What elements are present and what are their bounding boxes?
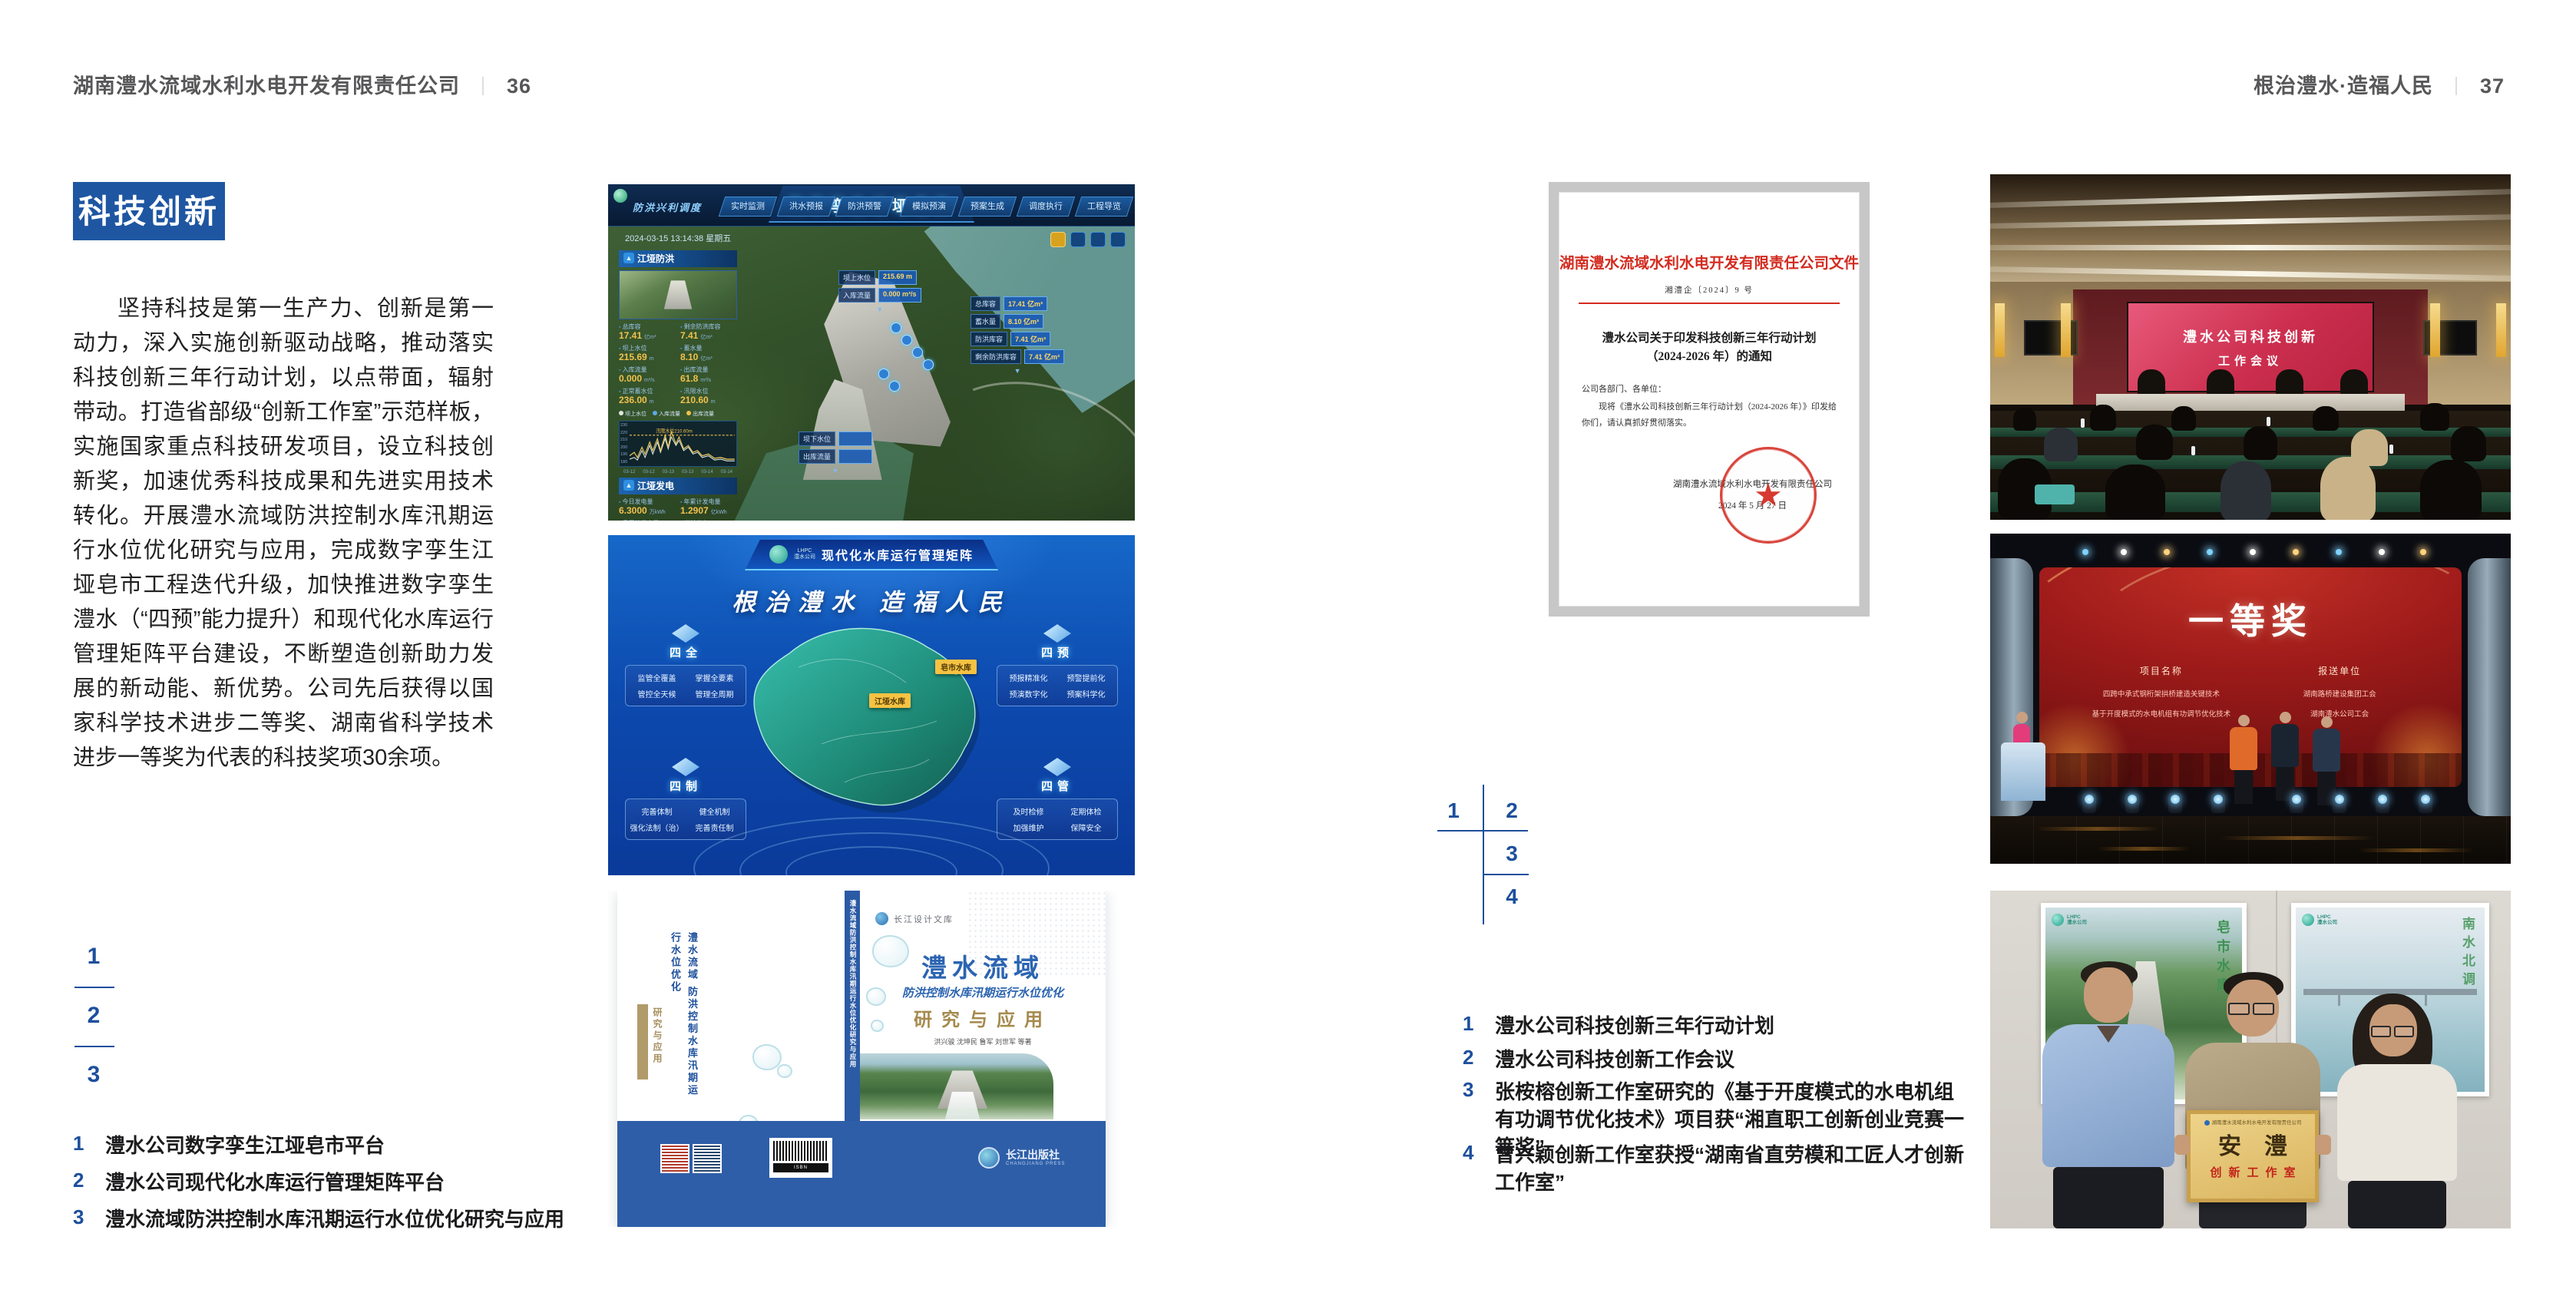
map-tag-jiangya: 江垭水库 (869, 693, 911, 708)
tag-value (838, 449, 872, 464)
block-siguan: 四管 及时检修定期体检 加强维护保障安全 (997, 758, 1118, 840)
caption-row: 1 澧水公司科技创新三年行动计划 (1463, 1012, 1969, 1040)
stat-value: 1.2907 (680, 505, 709, 516)
stat-unit: 亿kWh (711, 510, 727, 515)
tab-label: 洪水预报 (789, 197, 823, 216)
chart-x-axis: 03-1203-1203-1303-1303-1403-14 (619, 470, 737, 474)
back-title-region: 澧水流域 (686, 932, 698, 981)
layers-icon (1070, 232, 1086, 247)
screen-title-line1: 澧水公司科技创新 (2183, 326, 2318, 346)
attendee-silhouette (2221, 461, 2271, 520)
gate-marker (912, 347, 923, 358)
moving-head-light (2419, 793, 2432, 813)
stat-cell: 当前出力0.00MW (680, 519, 737, 521)
speaker-silhouette (2207, 369, 2234, 395)
stat-value: 0.000 (619, 373, 642, 384)
brand-slogan: 根治澧水·造福人民 (2254, 74, 2433, 98)
speaker-silhouette (2340, 369, 2368, 395)
tab-simulation: 模拟预演 (900, 197, 958, 217)
figure-meeting-photo: 澧水公司科技创新 工作会议 (1990, 174, 2511, 520)
module-label: 防洪兴利调度 (633, 200, 702, 214)
water-droplet (752, 1044, 782, 1070)
block-items: 监管全覆盖掌握全要素 管控全天候管理全周期 (625, 665, 746, 706)
stat-unit: m (650, 356, 654, 362)
reservoir-tag: 总库容17.41 亿m³ 蓄水量8.10 亿m³ 防洪库容7.41 亿m³ 剩余… (971, 296, 1064, 375)
official-seal: ★ (1720, 447, 1817, 544)
publisher-logo: 长江出版社 CHANGJIANG PRESS (978, 1147, 1065, 1169)
caption-number: 4 (1463, 1141, 1483, 1165)
figure-index-1: 1 (71, 944, 117, 970)
attendee-silhouette (2420, 403, 2449, 431)
header-divider: ｜ (2433, 77, 2480, 98)
authors-line: 洪兴骏 沈坤民 鲁军 刘世军 等著 (860, 1037, 1106, 1046)
chart-y-axis: 230220210200190180 (620, 422, 628, 466)
stat-value: 6.3000 (619, 505, 647, 516)
tag-value: 7.41 亿m³ (1024, 349, 1064, 364)
tissue-box (2035, 484, 2075, 504)
stage-light-dot (2164, 549, 2170, 555)
ceiling-light (1990, 245, 2511, 250)
block-items: 完善体制健全机制 强化法制（治）完善责任制 (625, 798, 746, 840)
body (2313, 729, 2340, 772)
lhpc-logo-icon (769, 545, 788, 564)
attendee-silhouette (2105, 465, 2165, 520)
toolbar-icons (1050, 232, 1126, 247)
plaque-logo-icon (2204, 1120, 2210, 1126)
lhpc-logo-text: LHPC澧水公司 (2067, 914, 2087, 925)
stat-unit: 亿m³ (644, 335, 656, 340)
caption-number: 1 (1463, 1012, 1483, 1036)
block-name: 四制 (625, 778, 746, 794)
glasses-icon (2371, 1026, 2414, 1037)
legs (2234, 770, 2253, 804)
plaque-subtitle: 创新工作室 (2191, 1164, 2315, 1180)
stage-light-dot (2420, 549, 2426, 555)
flood-stats-grid: 总库容17.41亿m³ 剩余防洪库容7.41亿m³ 坝上水位215.69m 蓄水… (619, 322, 737, 407)
seal-star: ★ (1754, 476, 1783, 514)
panel-icon: ▲ (623, 480, 634, 491)
innovation-studio-plaque: 湖南澧水流域水利水电开发有限责任公司 安澧 创新工作室 (2187, 1110, 2319, 1202)
stage-light-dot (2250, 549, 2256, 555)
caption-text: 曾兴颖创新工作室获授“湖南省直劳模和工匠人才创新工作室” (1495, 1141, 1969, 1196)
block-name: 四全 (625, 644, 746, 660)
section-title: 科技创新 (73, 182, 225, 240)
tag-label: 总库容 (971, 296, 1000, 311)
locate-icon (1090, 232, 1106, 247)
head (2238, 715, 2250, 726)
hand (2174, 1135, 2190, 1155)
stage-light-dot (2207, 549, 2213, 555)
building-icon (672, 758, 699, 776)
user-icon (1050, 232, 1066, 247)
plaque-name: 安澧 (2191, 1127, 2315, 1161)
stat-value: 210.60 (680, 395, 709, 405)
trousers (2053, 1167, 2164, 1228)
moving-head-light (2125, 793, 2139, 813)
thumb-dam-shape (664, 280, 692, 309)
figure-matrix-platform: LHPC澧水公司 现代化水库运行管理矩阵 根治澧水 造福人民 江垭水库 皂市水库… (608, 535, 1135, 875)
wall-lamp (2496, 303, 2506, 357)
figure-index-rule (74, 987, 114, 988)
figure-official-document: 湖南澧水流域水利水电开发有限责任公司文件 湘澧企〔2024〕9 号 澧水公司关于… (1549, 182, 1870, 617)
stat-value: 8.10 (680, 352, 698, 362)
flood-panel-header: ▲江垭防洪 (619, 250, 737, 267)
front-title-region: 澧水流域 (860, 947, 1106, 984)
document-page: 湖南澧水流域水利水电开发有限责任公司文件 湘澧企〔2024〕9 号 澧水公司关于… (1559, 192, 1860, 607)
caption-number: 1 (73, 1132, 93, 1156)
tag-value: 8.10 亿m³ (1004, 314, 1043, 329)
stat-cell: 坝上水位215.69m (619, 344, 676, 364)
block-name: 四预 (997, 644, 1118, 660)
caption-text: 澧水公司数字孪生江垭皂市平台 (105, 1132, 385, 1159)
attendee-silhouette (2451, 426, 2486, 461)
stage-light-dot (2379, 549, 2385, 555)
back-cover-title: 澧水流域 防洪控制水库汛期运行水位优化 (666, 932, 700, 1109)
stat-unit: 亿m³ (700, 335, 712, 340)
tag-label: 剩余防洪库容 (971, 349, 1021, 364)
stat-cell: 年累计发电量1.2907亿kWh (680, 498, 737, 517)
head (2321, 716, 2333, 728)
legend-item: 入库流量 (653, 410, 680, 418)
floor-reflection (2036, 827, 2159, 831)
dashboard-header-bar: 数字孪生江垭皂市 防洪兴利调度 实时监测 洪水预报 防洪预警 模拟预演 预案生成… (608, 184, 1135, 226)
isbn-barcode: ISBN (769, 1138, 832, 1178)
wall-lamp (2061, 303, 2071, 357)
stat-cell: 入库流量0.000m³/s (619, 365, 676, 385)
tag-pointer: ▼ (838, 306, 921, 313)
monitor-icon (1043, 624, 1071, 643)
company-name: 湖南澧水流域水利水电开发有限责任公司 (73, 74, 460, 98)
tab-flood-forecast: 洪水预报 (777, 197, 835, 217)
stat-unit: m³/s (644, 378, 655, 383)
brochure-spread: 湖南澧水流域水利水电开发有限责任公司｜36 根治澧水·造福人民｜37 科技创新 … (0, 0, 2576, 1306)
attendee-silhouette (2090, 405, 2116, 431)
stat-cell: 正常蓄水位236.00m (619, 387, 676, 407)
figure-award-ceremony: 一等奖 项目名称 四跨中承式钢桁架拱桥建造关键技术 基于开度模式的水电机组有功调… (1990, 534, 2511, 864)
tag-label: 坝下水位 (799, 431, 835, 446)
page-number-left: 36 (507, 74, 531, 98)
caption-row: 2 澧水公司现代化水库运行管理矩阵平台 (73, 1169, 610, 1196)
figure-index-rule (74, 1046, 114, 1047)
figure-index-3: 3 (71, 1062, 117, 1088)
series-name: 长江设计文库 (894, 913, 954, 925)
downstream-tag: 坝下水位 出库流量 ▼ (799, 431, 872, 474)
stat-unit: 亿m³ (700, 356, 712, 362)
figure-index-rule (1484, 874, 1529, 875)
document-salutation: 公司各部门、各单位： (1582, 382, 1666, 395)
publisher-name: 长江出版社 (1006, 1150, 1065, 1162)
tab-project-tour: 工程导览 (1075, 197, 1133, 217)
body (2271, 724, 2299, 767)
caption-text: 澧水公司科技创新三年行动计划 (1495, 1012, 1774, 1040)
document-red-header: 湖南澧水流域水利水电开发有限责任公司文件 (1559, 250, 1860, 273)
tab-label: 预案生成 (971, 197, 1004, 216)
column-header: 项目名称 (2085, 664, 2237, 677)
qr-code (660, 1144, 689, 1173)
tab-flood-warning: 防洪预警 (835, 197, 894, 217)
publisher-name-en: CHANGJIANG PRESS (1006, 1162, 1065, 1166)
floor-reflection (2221, 836, 2374, 840)
tag-pointer: ▼ (971, 367, 1064, 375)
water-bottle (2081, 418, 2085, 428)
caption-row: 1 澧水公司数字孪生江垭皂市平台 (73, 1132, 610, 1159)
left-page-header: 湖南澧水流域水利水电开发有限责任公司｜36 (73, 69, 531, 99)
document-title-line1: 澧水公司关于印发科技创新三年行动计划 (1559, 329, 1860, 346)
front-title-main: 防洪控制水库汛期运行水位优化 (860, 984, 1106, 1000)
chart-annotation: 汛限水位210.60m (656, 427, 693, 434)
front-title-sub: 研究与应用 (860, 1004, 1106, 1031)
matrix-header: LHPC澧水公司 现代化水库运行管理矩阵 (745, 540, 998, 570)
matrix-title: 现代化水库运行管理矩阵 (822, 545, 974, 564)
caption-row: 2 澧水公司科技创新工作会议 (1463, 1046, 1969, 1073)
audience-area (1990, 411, 2511, 520)
attendee-silhouette (2136, 425, 2173, 460)
head (2280, 712, 2291, 723)
panel-title: 江垭发电 (637, 481, 674, 491)
tag-value: 7.41 亿m³ (1010, 332, 1050, 346)
stage-side-panel (2468, 558, 2511, 816)
spine-title: 澧水流域防洪控制水库汛期运行水位优化研究与应用 (847, 900, 858, 1130)
tag-label: 蓄水量 (971, 314, 1000, 329)
speaker-silhouette (2276, 369, 2303, 395)
caption-text: 澧水公司现代化水库运行管理矩阵平台 (105, 1169, 445, 1196)
stat-cell: 出库流量61.8m³/s (680, 365, 737, 385)
caption-text: 澧水流域防洪控制水库汛期运行水位优化研究与应用 (105, 1205, 564, 1233)
tab-dispatch-execute: 调度执行 (1017, 197, 1075, 217)
legend-item: 坝上水位 (619, 410, 646, 418)
stat-value: 215.69 (619, 352, 647, 362)
stage-light-dot (2121, 549, 2127, 555)
figure-index-vline (1483, 785, 1484, 924)
caption-number: 2 (1463, 1046, 1483, 1070)
poster-logo: LHPC澧水公司 (2302, 914, 2337, 926)
map-tag-zaoshi: 皂市水库 (935, 660, 977, 674)
moving-head-light (2376, 793, 2389, 813)
stat-cell: 今日发电量6.3000万kWh (619, 498, 676, 517)
document-title-line2: （2024-2026 年）的通知 (1559, 347, 1860, 364)
figure-plaque-photo: LHPC澧水公司 皂市水库 LHPC澧水公司 南水北调 (1990, 891, 2511, 1228)
book-spread: 澧水流域 防洪控制水库汛期运行水位优化 研究与应用 澧水流域防洪控制水库汛期运行… (617, 891, 1106, 1227)
stat-label: 月累计发电量 (619, 519, 676, 521)
stat-unit: m (650, 399, 654, 405)
attendee-silhouette (2013, 408, 2036, 431)
lhpc-logo-text: LHPC澧水公司 (2317, 914, 2337, 925)
stage-light-dot (2082, 549, 2088, 555)
water-bottle (2389, 445, 2393, 454)
stat-label: 当前出力 (680, 519, 737, 521)
column-item: 基于开度模式的水电机组有功调节优化技术 (2085, 705, 2237, 725)
stat-cell: 月累计发电量3359.21万kWh (619, 519, 676, 521)
column-header: 报送单位 (2264, 664, 2416, 677)
stat-unit: m (711, 399, 716, 405)
shirt (2337, 1064, 2457, 1181)
moving-head-light (2290, 793, 2303, 813)
barcode-label: ISBN (773, 1163, 828, 1172)
app-logo-icon (613, 189, 627, 203)
winner-silhouette (2230, 715, 2257, 804)
power-panel-header: ▲江垭发电 (619, 478, 737, 494)
moving-head-light (2211, 793, 2225, 813)
lhpc-logo-text: LHPC澧水公司 (794, 548, 815, 560)
column-item: 四跨中承式钢桁架拱桥建造关键技术 (2085, 685, 2237, 705)
gate-marker (901, 335, 912, 346)
stat-value: 7.41 (680, 330, 698, 341)
glasses-icon (2228, 1003, 2274, 1015)
block-sizhi: 四制 完善体制健全机制 强化法制（治）完善责任制 (625, 758, 746, 840)
moving-head-light (2168, 793, 2182, 813)
attendee-silhouette (2244, 426, 2277, 460)
body (2230, 727, 2257, 770)
lhpc-logo-icon (2052, 914, 2064, 926)
tab-label: 模拟预演 (912, 197, 946, 216)
attendee-silhouette (2320, 457, 2376, 520)
gate-marker (923, 359, 934, 370)
gate-marker (878, 369, 889, 379)
right-tab-group: 模拟预演 预案生成 调度执行 工程导览 (903, 197, 1130, 217)
water-droplet (777, 1064, 792, 1078)
person-left (2033, 961, 2184, 1228)
wall-lamp (2430, 303, 2440, 357)
gold-block (637, 1004, 648, 1080)
podium (2001, 742, 2045, 801)
poster-logo: LHPC澧水公司 (2052, 914, 2087, 926)
speaker-silhouette (2138, 369, 2165, 395)
figure-index-rule (1437, 830, 1528, 832)
panel-title: 江垭防洪 (637, 253, 674, 264)
tab-realtime-monitor: 实时监测 (719, 197, 777, 217)
header-divider: ｜ (460, 77, 507, 98)
power-stats-grid: 今日发电量6.3000万kWh 年累计发电量1.2907亿kWh 月累计发电量3… (619, 498, 737, 521)
figure-index-3: 3 (1493, 841, 1531, 866)
legend-item: 出库流量 (686, 410, 714, 418)
stat-unit: 万kWh (650, 510, 666, 515)
stat-value: 236.00 (619, 395, 647, 405)
series-logo-row: 长江设计文库 (875, 912, 954, 925)
tab-label: 防洪预警 (848, 197, 881, 216)
head-table (2096, 394, 2405, 411)
block-name: 四管 (997, 778, 1118, 794)
figure-digital-twin-dashboard: 数字孪生江垭皂市 防洪兴利调度 实时监测 洪水预报 防洪预警 模拟预演 预案生成… (608, 184, 1135, 521)
panel-icon: ▲ (623, 253, 634, 263)
page-number-right: 37 (2480, 74, 2505, 98)
moving-head-light (2333, 793, 2346, 813)
stat-unit: m³/s (700, 378, 711, 383)
gear-icon (1043, 758, 1071, 776)
block-siyu: 四预 预报精准化预警提前化 预演数字化预案科学化 (997, 624, 1118, 706)
watershed-map (729, 613, 1024, 851)
chart-legend: 坝上水位 入库流量 出库流量 (619, 410, 737, 418)
timestamp: 2024-03-15 13:14:38 星期五 (625, 232, 731, 244)
dam-thumbnail (619, 270, 737, 319)
section-body-text: 坚持科技是第一生产力、创新是第一动力，深入实施创新驱动战略，推动落实科技创新三年… (73, 292, 494, 775)
stat-cell: 蓄水量8.10亿m³ (680, 344, 737, 364)
screen-title-line2: 工作会议 (2218, 352, 2283, 369)
stat-cell: 总库容17.41亿m³ (619, 322, 676, 342)
tag-label: 防洪库容 (971, 332, 1007, 346)
qr-code (693, 1144, 722, 1173)
gate-marker (891, 322, 901, 333)
cube-icon (672, 624, 699, 643)
tag-label: 出库流量 (799, 449, 835, 464)
cover-bottom-band (617, 1121, 1106, 1227)
water-bottle (2267, 417, 2270, 426)
back-cover-subtitle: 研究与应用 (651, 1007, 664, 1065)
figure-index-1: 1 (1434, 798, 1473, 823)
left-data-panel: ▲江垭防洪 总库容17.41亿m³ 剩余防洪库容7.41亿m³ 坝上水位215.… (619, 250, 737, 517)
plaque-org-line: 湖南澧水流域水利水电开发有限责任公司 (2191, 1118, 2315, 1126)
head (2084, 967, 2133, 1023)
stage-light-dot (2293, 549, 2299, 555)
water-bottle (2191, 446, 2195, 455)
tag-pointer: ▼ (799, 467, 872, 474)
upstream-tag: 坝上水位215.69 m 入库流量0.000 m³/s ▼ (838, 270, 921, 313)
tag-value: 215.69 m (878, 270, 917, 285)
moving-head-light (2082, 793, 2096, 813)
trousers (2348, 1181, 2446, 1228)
tag-value (838, 431, 872, 446)
caption-text: 澧水公司科技创新工作会议 (1495, 1046, 1734, 1073)
settings-icon (1110, 232, 1126, 247)
stat-value: 17.41 (619, 330, 642, 341)
tag-value: 17.41 亿m³ (1004, 296, 1047, 311)
figure-index-4: 4 (1493, 884, 1531, 909)
stage-light-dot (2336, 549, 2342, 555)
caption-row: 4 曾兴颖创新工作室获授“湖南省直劳模和工匠人才创新工作室” (1463, 1141, 1969, 1196)
right-page-header: 根治澧水·造福人民｜37 (2254, 69, 2505, 99)
stat-cell: 剩余防洪库容7.41亿m³ (680, 322, 737, 342)
document-number: 湘澧企〔2024〕9 号 (1559, 284, 1860, 296)
attendee-silhouette (2313, 406, 2339, 431)
dam-photo (860, 1053, 1053, 1119)
globe-icon (875, 912, 888, 925)
water-level-chart: 230220210200190180 汛限水位210.60m (619, 421, 737, 467)
tag-label: 坝上水位 (838, 270, 875, 285)
tab-label: 实时监测 (731, 197, 765, 216)
tab-label: 调度执行 (1029, 197, 1063, 216)
project-column: 项目名称 四跨中承式钢桁架拱桥建造关键技术 基于开度模式的水电机组有功调节优化技… (2085, 664, 2237, 725)
stat-value: 61.8 (680, 373, 698, 384)
tab-label: 工程导览 (1087, 197, 1121, 216)
floor-reflection (2359, 848, 2474, 852)
lhpc-logo-icon (2302, 914, 2314, 926)
tag-label: 入库流量 (838, 288, 875, 303)
attendee-silhouette (2420, 460, 2482, 520)
hand (2316, 1135, 2331, 1155)
attendee-silhouette (2171, 406, 2196, 431)
figure-book-cover: 澧水流域 防洪控制水库汛期运行水位优化 研究与应用 澧水流域防洪控制水库汛期运行… (608, 891, 1135, 1227)
caption-number: 3 (73, 1205, 93, 1229)
floor-reflection (2098, 847, 2190, 851)
red-rule (1579, 303, 1840, 304)
block-items: 及时检修定期体检 加强维护保障安全 (997, 798, 1118, 840)
wall-lamp (1995, 303, 2005, 357)
column-item: 湖南路桥建设集团工会 (2264, 685, 2416, 705)
gate-marker (889, 381, 900, 392)
figure-index-2: 2 (71, 1003, 117, 1029)
matrix-slogan: 根治澧水 造福人民 (608, 583, 1135, 617)
tab-plan-generate: 预案生成 (958, 197, 1017, 217)
caption-row: 3 澧水流域防洪控制水库汛期运行水位优化研究与应用 (73, 1205, 610, 1233)
left-tab-group: 实时监测 洪水预报 防洪预警 (722, 197, 891, 217)
poster-right-caption: 南水北调 (2458, 917, 2477, 990)
publisher-icon (978, 1147, 1000, 1169)
tag-value: 0.000 m³/s (878, 288, 921, 303)
stat-cell: 汛限水位210.60m (680, 387, 737, 407)
person-right (2330, 994, 2465, 1228)
figure-index-2: 2 (1493, 798, 1531, 823)
winner-silhouette (2313, 716, 2340, 805)
head (2016, 712, 2028, 723)
